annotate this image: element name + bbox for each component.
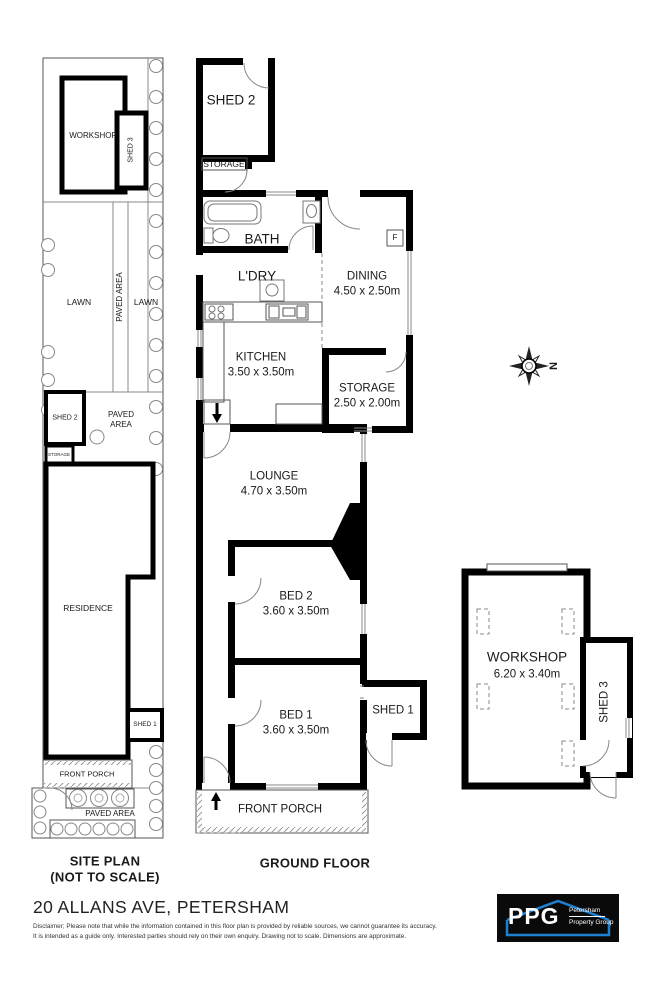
ppg-logo-separator — [569, 916, 605, 917]
gf-bed2-dims: 3.60 x 3.50m — [263, 606, 329, 618]
site-workshop-label: WORKSHOP — [69, 132, 117, 140]
gf-shed1-label: SHED 1 — [372, 705, 414, 717]
gf-bed1-dims: 3.60 x 3.50m — [263, 725, 329, 737]
workshop-dims: 6.20 x 3.40m — [494, 669, 560, 681]
gf-kitchen-dims: 3.50 x 3.50m — [228, 367, 294, 379]
rear-entry-arrow-icon — [212, 403, 222, 423]
disclaimer-line-1: Disclaimer; Please note that while the i… — [33, 923, 437, 930]
bathtub-icon — [204, 201, 261, 224]
gf-shed2-label: SHED 2 — [207, 93, 256, 107]
site-residence-label: RESIDENCE — [63, 604, 113, 613]
site-shed1-label: SHED 1 — [133, 722, 156, 729]
site-shed2-label: SHED 2 — [52, 415, 77, 422]
site-front-porch-label: FRONT PORCH — [60, 770, 115, 778]
gf-storage-label: STORAGE — [339, 383, 395, 395]
toilet-icon — [204, 228, 229, 243]
ppg-logo-line-2: Property Group — [569, 919, 613, 926]
gf-dining-dims: 4.50 x 2.50m — [334, 286, 400, 298]
workshop-label: WORKSHOP — [487, 650, 567, 664]
site-plan-title: SITE PLAN — [70, 855, 141, 868]
site-shed3-label: SHED 3 — [128, 137, 135, 162]
site-paved-strip-label: PAVED AREA — [116, 272, 124, 322]
gf-lounge-label: LOUNGE — [250, 471, 299, 483]
gf-lounge-dims: 4.70 x 3.50m — [241, 486, 307, 498]
gf-storage-dims: 2.50 x 2.00m — [334, 398, 400, 410]
basin-icon — [303, 201, 320, 223]
gf-front-porch-label: FRONT PORCH — [238, 804, 322, 816]
site-storage-label: STORAGE — [48, 453, 70, 458]
ground-floor-title: GROUND FLOOR — [260, 857, 370, 870]
site-paved-mid-label-2: AREA — [110, 421, 132, 429]
site-lawn-right-label: LAWN — [134, 298, 158, 307]
front-entry-arrow-icon — [211, 792, 221, 810]
gf-bed1-label: BED 1 — [279, 710, 312, 722]
gf-laundry-label: L'DRY — [238, 269, 276, 283]
gf-bath-label: BATH — [244, 232, 279, 246]
site-paved-bottom-label: PAVED AREA — [85, 810, 135, 818]
site-paved-mid-label-1: PAVED — [108, 411, 134, 419]
gf-kitchen-label: KITCHEN — [236, 352, 286, 364]
address-title: 20 ALLANS AVE, PETERSHAM — [33, 897, 289, 917]
site-plan-subtitle: (NOT TO SCALE) — [50, 871, 159, 884]
fridge-label: F — [393, 234, 398, 242]
disclaimer-line-2: It is intended as a guide only. Interest… — [33, 933, 406, 940]
gf-storage-top-label: STORAGE — [203, 160, 244, 169]
ppg-logo: PPG Petersham Property Group — [497, 894, 619, 942]
ppg-logo-line-1: Petersham — [569, 907, 600, 914]
site-lawn-left-label: LAWN — [67, 298, 91, 307]
floorplan-page: WORKSHOP SHED 3 LAWN PAVED AREA LAWN SHE… — [0, 0, 667, 1000]
gf-dining-label: DINING — [347, 271, 387, 283]
north-label: N — [547, 362, 558, 370]
ppg-logo-acronym: PPG — [508, 903, 560, 930]
gf-bed2-label: BED 2 — [279, 591, 312, 603]
shed3-label: SHED 3 — [599, 681, 611, 723]
